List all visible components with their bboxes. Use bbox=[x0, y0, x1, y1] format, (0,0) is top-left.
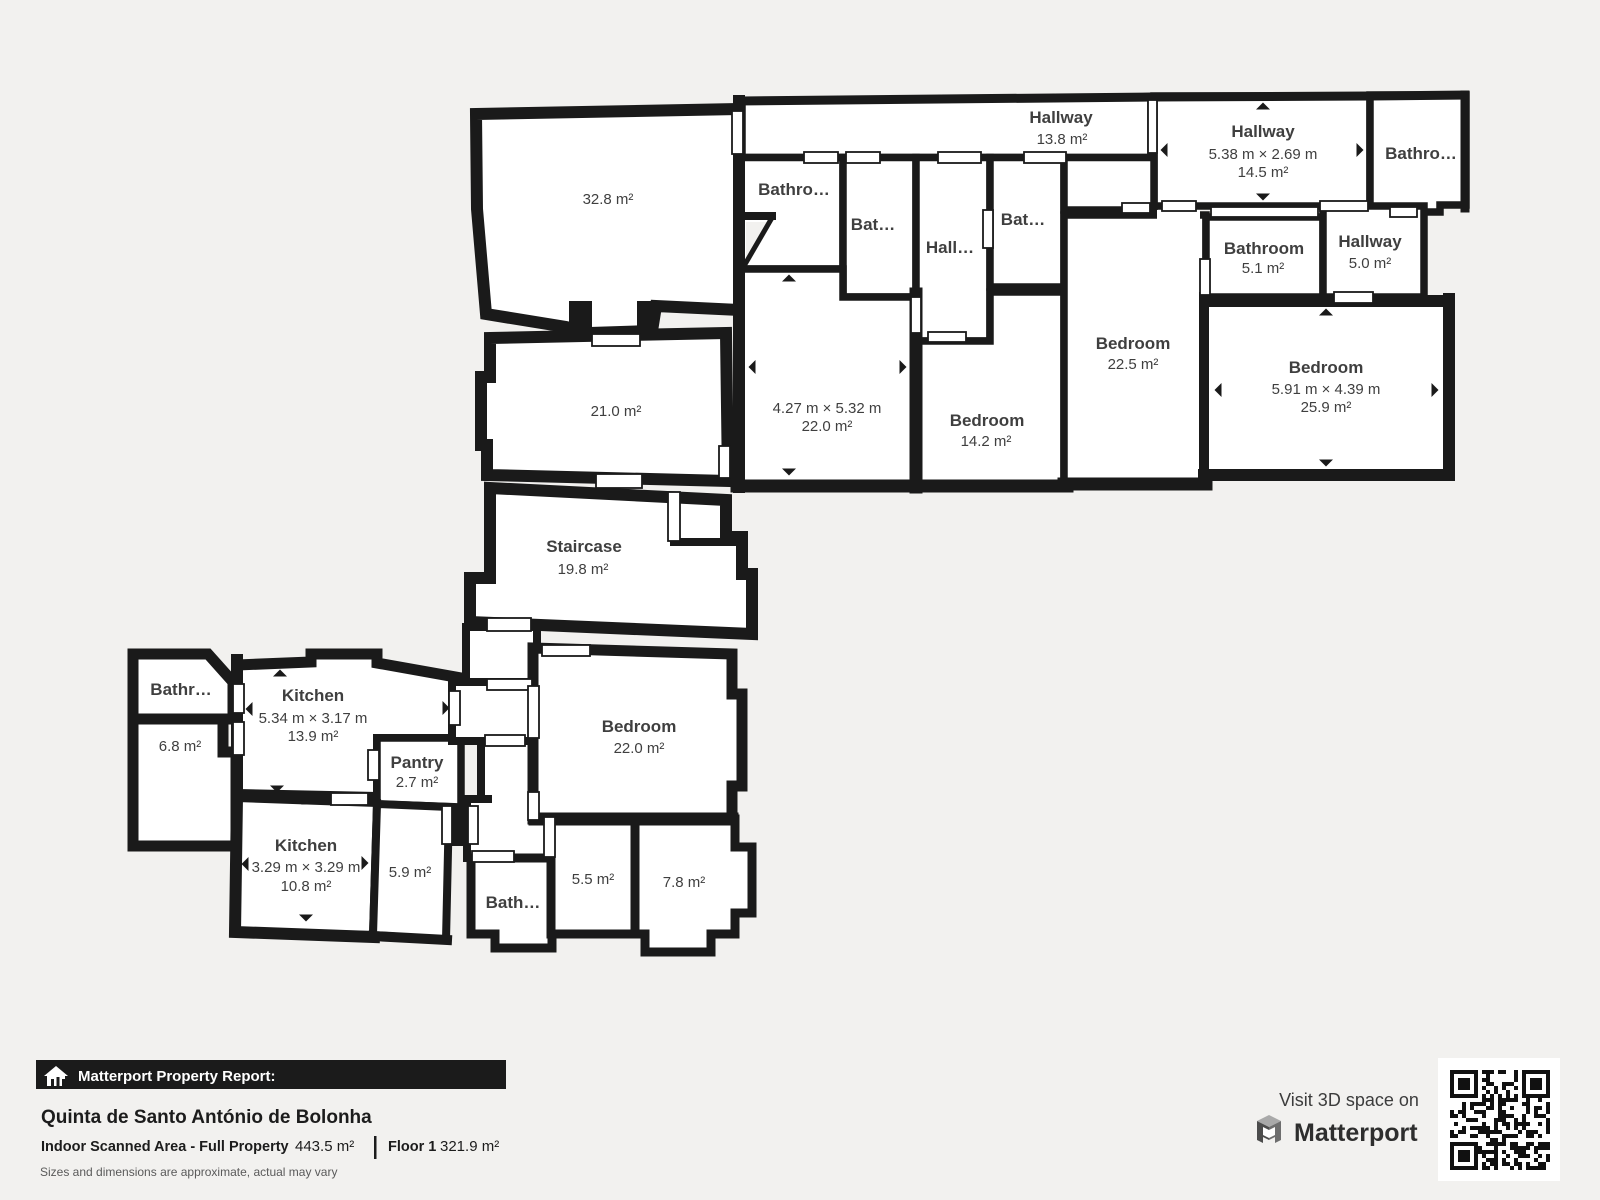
svg-text:Matterport Property Report:: Matterport Property Report: bbox=[78, 1068, 276, 1085]
svg-text:Bedroom: Bedroom bbox=[1289, 358, 1364, 377]
svg-text:Staircase: Staircase bbox=[546, 537, 622, 556]
svg-text:5.5 m²: 5.5 m² bbox=[572, 871, 615, 888]
svg-text:19.8 m²: 19.8 m² bbox=[558, 561, 609, 578]
svg-text:Pantry: Pantry bbox=[391, 753, 444, 772]
svg-text:5.9 m²: 5.9 m² bbox=[389, 864, 432, 881]
svg-text:4.27 m × 5.32 m: 4.27 m × 5.32 m bbox=[773, 400, 882, 417]
svg-text:3.29 m × 3.29 m: 3.29 m × 3.29 m bbox=[252, 859, 361, 876]
svg-text:Hallway: Hallway bbox=[1338, 232, 1402, 251]
svg-text:6.8 m²: 6.8 m² bbox=[159, 738, 202, 755]
svg-text:Indoor Scanned Area - Full Pro: Indoor Scanned Area - Full Property bbox=[41, 1139, 289, 1155]
svg-text:7.8 m²: 7.8 m² bbox=[663, 874, 706, 891]
svg-text:Quinta de Santo António de Bol: Quinta de Santo António de Bolonha bbox=[41, 1107, 372, 1128]
svg-text:25.9 m²: 25.9 m² bbox=[1301, 399, 1352, 416]
svg-text:Hallway: Hallway bbox=[1231, 122, 1295, 141]
svg-text:2.7 m²: 2.7 m² bbox=[396, 774, 439, 791]
svg-text:Hall…: Hall… bbox=[926, 238, 974, 257]
svg-text:Matterport: Matterport bbox=[1294, 1119, 1418, 1147]
svg-text:13.9 m²: 13.9 m² bbox=[288, 728, 339, 745]
svg-text:32.8 m²: 32.8 m² bbox=[583, 191, 634, 208]
svg-text:443.5 m²: 443.5 m² bbox=[295, 1138, 354, 1155]
svg-text:321.9 m²: 321.9 m² bbox=[440, 1138, 499, 1155]
svg-text:5.34 m × 3.17 m: 5.34 m × 3.17 m bbox=[259, 710, 368, 727]
svg-text:5.38 m × 2.69 m: 5.38 m × 2.69 m bbox=[1209, 146, 1318, 163]
svg-text:Hallway: Hallway bbox=[1029, 108, 1093, 127]
svg-text:Bath…: Bath… bbox=[486, 893, 541, 912]
svg-text:Visit 3D space on: Visit 3D space on bbox=[1279, 1090, 1419, 1110]
svg-text:Sizes and dimensions are appro: Sizes and dimensions are approximate, ac… bbox=[40, 1165, 337, 1179]
svg-text:Bedroom: Bedroom bbox=[950, 411, 1025, 430]
svg-text:22.0 m²: 22.0 m² bbox=[614, 740, 665, 757]
svg-text:22.5 m²: 22.5 m² bbox=[1108, 356, 1159, 373]
svg-text:Floor 1: Floor 1 bbox=[388, 1139, 436, 1155]
svg-text:Kitchen: Kitchen bbox=[275, 836, 337, 855]
svg-text:Bathro…: Bathro… bbox=[758, 180, 830, 199]
svg-text:Bat…: Bat… bbox=[851, 215, 895, 234]
svg-text:13.8 m²: 13.8 m² bbox=[1037, 131, 1088, 148]
svg-text:14.5 m²: 14.5 m² bbox=[1238, 164, 1289, 181]
svg-text:Bathr…: Bathr… bbox=[150, 680, 211, 699]
svg-text:Bedroom: Bedroom bbox=[1096, 334, 1171, 353]
svg-text:Bathro…: Bathro… bbox=[1385, 144, 1457, 163]
svg-text:5.91 m × 4.39 m: 5.91 m × 4.39 m bbox=[1272, 381, 1381, 398]
svg-text:Bedroom: Bedroom bbox=[602, 717, 677, 736]
svg-text:22.0 m²: 22.0 m² bbox=[802, 418, 853, 435]
svg-text:5.1 m²: 5.1 m² bbox=[1242, 260, 1285, 277]
svg-text:Bathroom: Bathroom bbox=[1224, 239, 1304, 258]
svg-text:10.8 m²: 10.8 m² bbox=[281, 878, 332, 895]
svg-text:21.0 m²: 21.0 m² bbox=[591, 403, 642, 420]
svg-text:Bat…: Bat… bbox=[1001, 210, 1045, 229]
svg-text:14.2 m²: 14.2 m² bbox=[961, 433, 1012, 450]
svg-text:Kitchen: Kitchen bbox=[282, 686, 344, 705]
svg-text:5.0 m²: 5.0 m² bbox=[1349, 255, 1392, 272]
